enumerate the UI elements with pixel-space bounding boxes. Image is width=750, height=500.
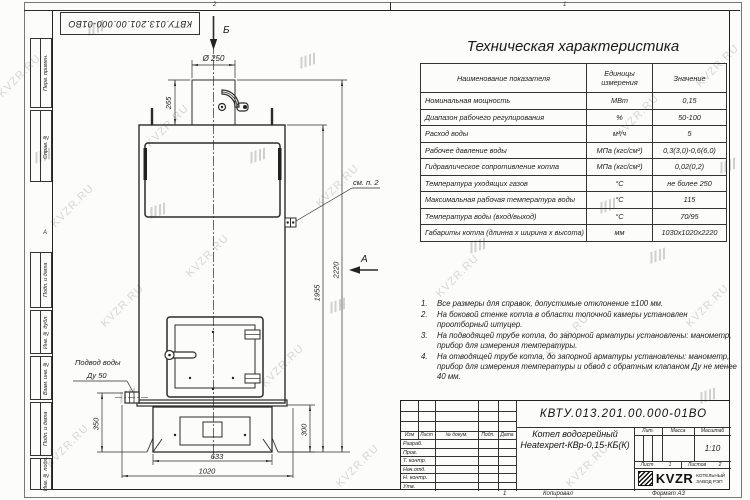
spec-param: Диапазон рабочего регулирования — [421, 109, 587, 126]
dim-350-label: 350 — [92, 417, 101, 430]
view-b-label: Б — [223, 25, 230, 36]
stamp-empty-cell — [31, 403, 41, 455]
spec-row: Номинальная мощностьМВт0,15 — [421, 93, 727, 110]
stamp-podp-data-1: Подп. и дата — [30, 252, 52, 308]
dim-633-label: 633 — [211, 452, 224, 461]
tb-sheets-number: 2 — [713, 461, 727, 468]
tb-product-line2: Heatexpert-КВр-0,15-КБ(К) — [516, 440, 634, 451]
title-block: Изм Лист № докум. Подп. Дата Разраб. Про… — [400, 400, 730, 490]
dim-1020-label: 1020 — [199, 467, 217, 476]
see-note-leader — [296, 188, 352, 221]
dim-1955-label: 1955 — [313, 284, 322, 302]
see-note-label: см. п. 2 — [353, 178, 379, 187]
dim-dia250-label: Ø 250 — [202, 54, 225, 63]
stamp-empty-cell — [31, 459, 41, 489]
spec-param: Максимальная рабочая температура воды — [421, 192, 587, 209]
spec-param: Температура воды (вход/выход) — [421, 208, 587, 225]
stamp-label: Подп. и дата — [41, 253, 51, 307]
ash-opening — [180, 417, 250, 445]
notes-block: 1.Все размеры для справок, допустимые от… — [419, 299, 739, 383]
spec-value: не более 250 — [653, 175, 727, 192]
dim-300-label: 300 — [300, 423, 309, 436]
spec-row: Рабочее давление водыМПа (кгс/см²)0,3(3,… — [421, 142, 727, 159]
stamp-empty-cell — [31, 357, 41, 399]
kvzr-logo-text: KVZR — [656, 471, 693, 486]
view-a-label: А — [360, 254, 368, 265]
boiler-front-view: Б Ø 250 265 см. п. 2 — [55, 8, 390, 478]
spec-row: Температура уходящих газов°Сне более 250 — [421, 175, 727, 192]
spec-table-title: Техническая характеристика — [420, 38, 726, 55]
spec-row: Гидравлическое сопротивление котлаМПа (к… — [421, 159, 727, 176]
tb-col-data: Дата — [498, 431, 516, 439]
spec-param: Температура уходящих газов — [421, 175, 587, 192]
dim-2220-label: 2220 — [332, 261, 341, 280]
stamp-podp-data-2: Подп. и дата — [30, 402, 52, 456]
spec-header-row: Наименование показателя Единицы измерени… — [421, 64, 727, 93]
spec-param: Гидравлическое сопротивление котла — [421, 159, 587, 176]
tb-designation: КВТУ.013.201.00.000-01ВО — [516, 401, 731, 427]
stamp-label: Взам. инв. № — [41, 357, 51, 399]
note-number: 1. — [419, 299, 437, 309]
spec-col-units: Единицы измерения — [587, 64, 653, 93]
stamp-label: Перв. примен. — [41, 39, 51, 107]
spec-value: 0,02(0,2) — [653, 159, 727, 176]
stamp-label: Подп. и дата — [41, 403, 51, 455]
spec-units: мм — [587, 225, 653, 242]
spec-row: Температура воды (вход/выход)°С70/95 — [421, 208, 727, 225]
inlet-label-2: Ду 50 — [86, 371, 107, 380]
spec-row: Диапазон рабочего регулирования%50-100 — [421, 109, 727, 126]
spec-units: МПа (кгс/см²) — [587, 142, 653, 159]
stamp-vzam-inv: Взам. инв. № — [30, 356, 52, 400]
spec-units: МПа (кгс/см²) — [587, 159, 653, 176]
tb-scale-label: Масштаб — [694, 427, 731, 435]
inlet-label-1: Подвод воды — [75, 358, 121, 367]
spec-units: °С — [587, 208, 653, 225]
spec-row: Габариты котла (длинна х ширина х высота… — [421, 225, 727, 242]
copied-label: Копировал — [543, 491, 573, 497]
spec-param: Габариты котла (длинна х ширина х высота… — [421, 225, 587, 242]
spec-units: % — [587, 109, 653, 126]
inlet-leader — [127, 381, 133, 392]
zone-letter: А — [43, 230, 47, 236]
stamp-label: Инв. № подл. — [41, 459, 51, 489]
spec-table: Наименование показателя Единицы измерени… — [420, 63, 727, 242]
view-b-arrowhead — [210, 39, 217, 50]
tb-product-line1: Котел водогрейный — [516, 429, 634, 440]
note-text: На боковой стенке котла в области топочн… — [437, 310, 739, 330]
stamp-inv-podl: Инв. № подл. — [30, 458, 52, 490]
tb-row-prov: Пров. — [403, 450, 434, 456]
note-item: 1.Все размеры для справок, допустимые от… — [419, 299, 739, 309]
spec-units: м³/ч — [587, 126, 653, 143]
spec-col-value: Значение — [653, 64, 727, 93]
spec-value: 115 — [653, 192, 727, 209]
tb-row-nachotd: Нач.отд. — [403, 467, 434, 473]
zone-number: 1 — [563, 2, 566, 8]
tb-lit-label: Лит. — [634, 427, 662, 435]
tb-row-razrab: Разраб. — [403, 441, 434, 447]
copied-mark: 1 — [503, 491, 506, 497]
note-text: На подводящей трубе котла, до запорной а… — [437, 331, 739, 351]
tb-sheet-label: Лист — [636, 461, 658, 468]
chimney — [192, 80, 235, 125]
note-number: 2. — [419, 310, 437, 330]
zone-divider — [390, 2, 391, 10]
note-number: 3. — [419, 331, 437, 351]
ash-door — [203, 422, 222, 437]
spec-value: 1030х1020х2220 — [653, 225, 727, 242]
spec-value: 5 — [653, 126, 727, 143]
tb-mass-label: Масса — [662, 427, 694, 435]
note-text: На отводящей трубе котла, до запорной ар… — [437, 352, 739, 382]
stamp-label: Справ. № — [41, 111, 51, 181]
view-a-arrowhead — [349, 266, 360, 273]
tb-row-nkontr: Н. контр. — [403, 475, 434, 481]
tb-row-utv: Утв. — [403, 484, 434, 490]
tb-row-tkontr: Т. контр. — [403, 458, 434, 464]
upper-door — [145, 143, 280, 217]
tb-sheet-number: 1 — [663, 461, 677, 468]
stamp-label: Инв. № дубл. — [41, 311, 51, 353]
spec-units: °С — [587, 175, 653, 192]
stamp-inv-dubl: Инв. № дубл. — [30, 310, 52, 354]
tb-col-list: Лист — [418, 431, 435, 439]
note-item: 4.На отводящей трубе котла, до запорной … — [419, 352, 739, 382]
upper-door-hinge-left — [144, 148, 148, 180]
spec-value: 0,15 — [653, 93, 727, 110]
stamp-empty-cell — [31, 111, 41, 181]
spec-units: °С — [587, 192, 653, 209]
tb-scale-value: 1:10 — [694, 435, 731, 461]
tb-col-podp: Подп. — [478, 431, 498, 439]
tb-col-izm: Изм — [401, 431, 418, 439]
spec-value: 70/95 — [653, 208, 727, 225]
kvzr-logo-subtext: КОТЕЛЬНЫЙ ЗАВОД РЭП — [696, 473, 730, 484]
spec-value: 50-100 — [653, 109, 727, 126]
stamp-empty-cell — [31, 253, 41, 307]
stamp-perv-primen: Перв. примен. — [30, 38, 52, 108]
spec-row: Максимальная рабочая температура воды°С1… — [421, 192, 727, 209]
stamp-sprav-no: Справ. № — [30, 110, 52, 182]
kvzr-logo-icon — [638, 471, 653, 486]
note-item: 2.На боковой стенке котла в области топо… — [419, 310, 739, 330]
tb-product-name: Котел водогрейный Heatexpert-КВр-0,15-КБ… — [516, 429, 634, 457]
upper-door-hinge-right — [278, 148, 282, 180]
tb-col-doc: № докум. — [435, 431, 478, 439]
spec-param: Расход воды — [421, 126, 587, 143]
note-number: 4. — [419, 352, 437, 382]
spec-units: МВт — [587, 93, 653, 110]
tb-logo: KVZR КОТЕЛЬНЫЙ ЗАВОД РЭП — [638, 468, 730, 489]
drawing-sheet: { "watermark": {"text": "KVZR.RU"}, "she… — [0, 0, 750, 500]
spec-col-name: Наименование показателя — [421, 64, 587, 93]
dim-265-label: 265 — [164, 96, 173, 110]
tb-sheets-label: Листов — [683, 461, 711, 468]
stamp-empty-cell — [31, 311, 41, 353]
note-item: 3.На подводящей трубе котла, до запорной… — [419, 331, 739, 351]
note-text: Все размеры для справок, допустимые откл… — [437, 299, 739, 309]
stamp-empty-cell — [31, 39, 41, 107]
spec-value: 0,3(3,0)-0,6(6,0) — [653, 142, 727, 159]
spec-row: Расход водым³/ч5 — [421, 126, 727, 143]
spec-param: Рабочее давление воды — [421, 142, 587, 159]
spec-param: Номинальная мощность — [421, 93, 587, 110]
format-label: Формат А3 — [652, 491, 685, 497]
